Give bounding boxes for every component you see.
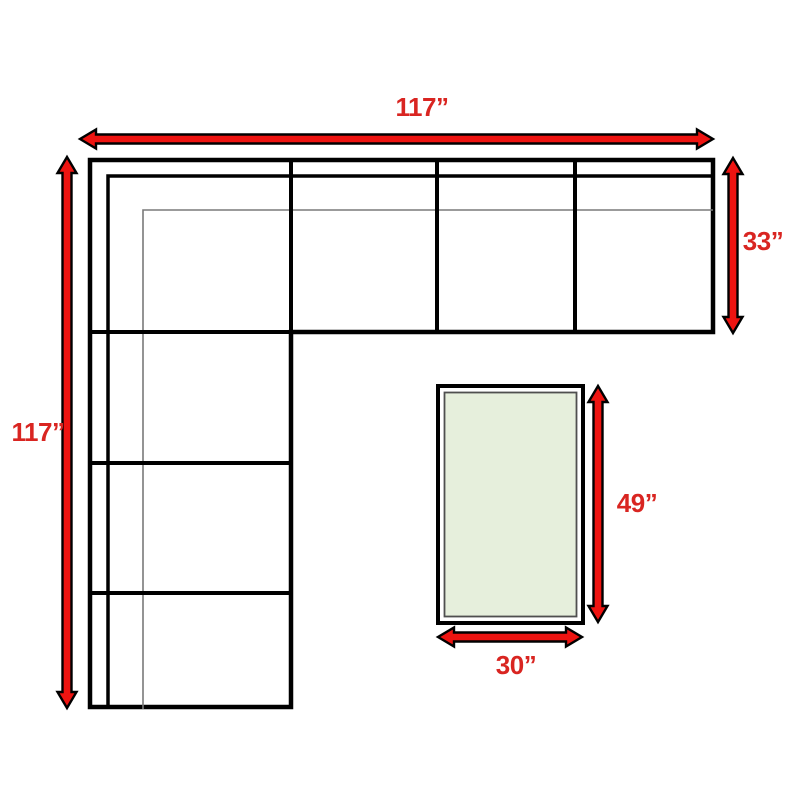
table-length-label: 49” [617, 488, 657, 518]
table [438, 386, 583, 623]
table-width-label: 30” [496, 650, 536, 680]
sofa-width-label: 117” [396, 92, 449, 122]
sofa-height-label: 117” [12, 417, 65, 447]
sectional-sofa [90, 160, 713, 709]
table-length-arrow [589, 386, 608, 622]
table-top [445, 393, 577, 617]
diagram-svg: 117” 117” 33” 49” 30” [0, 0, 800, 800]
sofa-depth-arrow [724, 158, 743, 333]
sofa-outline [90, 160, 713, 707]
sofa-width-arrow [80, 130, 713, 149]
sofa-depth-label: 33” [743, 226, 783, 256]
furniture-dimension-diagram: 117” 117” 33” 49” 30” [0, 0, 800, 800]
table-width-arrow [438, 628, 582, 647]
